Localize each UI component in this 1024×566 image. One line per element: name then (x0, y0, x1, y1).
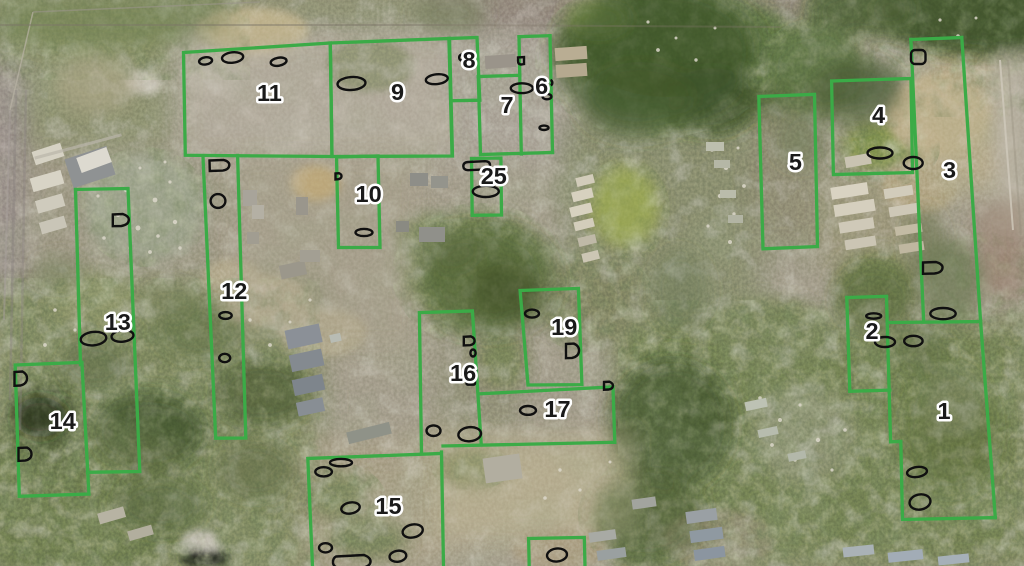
svg-text:17: 17 (544, 396, 570, 422)
svg-text:15: 15 (375, 493, 401, 519)
svg-text:5: 5 (789, 149, 802, 175)
svg-text:4: 4 (872, 102, 885, 128)
svg-text:14: 14 (50, 408, 76, 434)
svg-text:9: 9 (391, 79, 404, 105)
svg-text:7: 7 (500, 92, 513, 118)
svg-text:25: 25 (481, 163, 507, 189)
svg-text:13: 13 (105, 309, 131, 335)
svg-text:10: 10 (356, 181, 382, 207)
svg-text:3: 3 (943, 157, 956, 183)
svg-text:2: 2 (865, 318, 878, 344)
svg-text:16: 16 (450, 360, 476, 386)
svg-text:19: 19 (551, 314, 577, 340)
svg-text:12: 12 (221, 278, 247, 304)
svg-text:11: 11 (257, 80, 282, 106)
svg-text:1: 1 (937, 398, 950, 424)
svg-text:8: 8 (462, 47, 475, 73)
svg-text:6: 6 (535, 73, 548, 99)
